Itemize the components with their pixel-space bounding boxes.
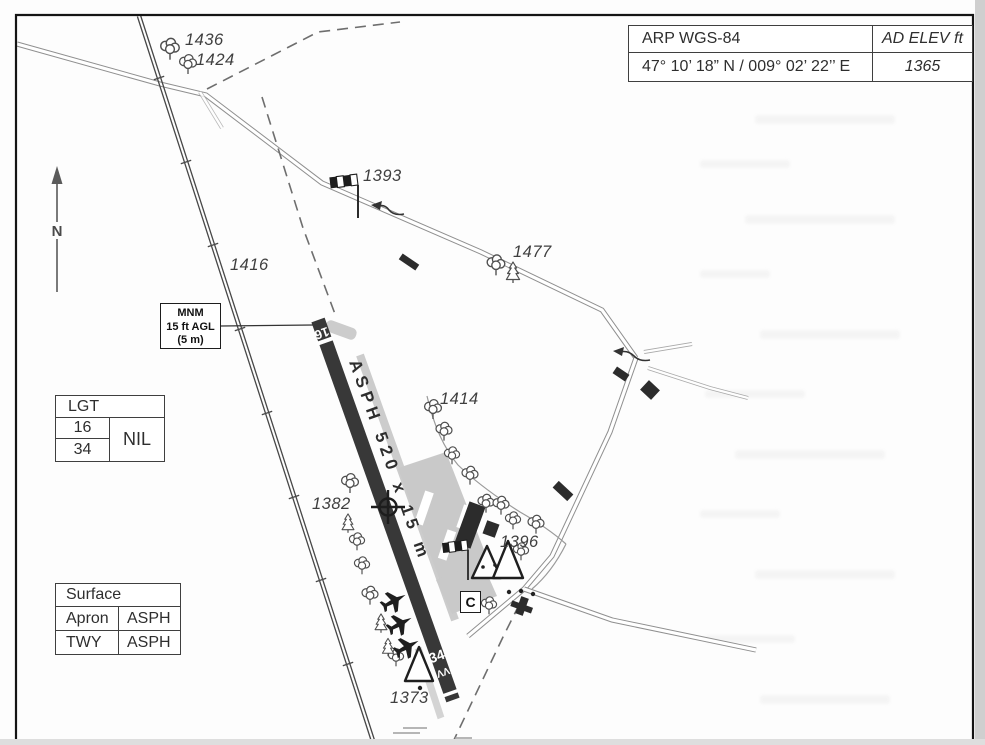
surface-twy-value: ASPH (119, 631, 180, 654)
lgt-value: NIL (110, 418, 164, 461)
mnm-leader-line (221, 325, 313, 326)
tree-icon (362, 586, 378, 604)
tree-icon (342, 474, 359, 493)
lgt-rwy-34: 34 (56, 439, 110, 461)
conifer-icon (342, 514, 354, 533)
mnm-line1: MNM (161, 307, 220, 321)
north-label: N (52, 223, 63, 240)
conifer-icon (382, 638, 393, 656)
tree-icon (528, 515, 544, 533)
mnm-line3: (5 m) (161, 334, 220, 348)
lgt-table: LGT 16 NIL 34 (55, 395, 165, 462)
tree-icon (505, 512, 520, 529)
surface-title: Surface (56, 584, 180, 607)
spot-elevation-1477: 1477 (513, 243, 552, 261)
spot-elevation-1393: 1393 (363, 167, 402, 185)
spot-elevation-1416: 1416 (230, 256, 269, 274)
tree-icon (425, 400, 442, 419)
aircraft-icon (377, 585, 411, 617)
page-edge-right (975, 0, 985, 745)
boundary-dash-nw (207, 22, 400, 89)
lgt-title: LGT (56, 396, 164, 418)
aerodrome-chart-page: 16 34 ΛΛ ASPH 520 x 15 m (0, 0, 985, 745)
spot-elevation-1396: 1396 (500, 533, 539, 551)
mnm-agl-box: MNM 15 ft AGL (5 m) (160, 303, 221, 349)
spot-elevation-1414: 1414 (440, 390, 479, 408)
arp-coordinates: 47° 10’ 18” N / 009° 02’ 22’’ E (629, 53, 873, 81)
tree-icon (487, 255, 505, 275)
spot-elevation-1382: 1382 (312, 495, 351, 513)
spot-elevation-1436: 1436 (185, 31, 224, 49)
arp-label: ARP WGS-84 (629, 26, 873, 53)
main-road (17, 44, 636, 358)
tree-icon (493, 496, 509, 514)
tree-icon (354, 557, 369, 574)
spot-elevation-1424: 1424 (196, 51, 235, 69)
surface-table: Surface Apron ASPH TWY ASPH (55, 583, 181, 655)
aircraft-icon (383, 608, 417, 640)
signal-area-c-badge: C (460, 591, 481, 613)
surface-row-twy: TWY (56, 631, 119, 654)
tree-icon (436, 422, 452, 440)
road-branches-east (644, 344, 748, 398)
boundary-dash-centerline (262, 97, 335, 314)
lgt-rwy-16: 16 (56, 418, 110, 439)
building (482, 520, 499, 538)
tree-icon (180, 55, 197, 74)
mnm-line2: 15 ft AGL (161, 321, 220, 335)
tree-icon (161, 38, 179, 59)
building (553, 481, 574, 501)
conifer-icon (375, 614, 387, 633)
north-arrow: N (47, 166, 67, 292)
spot-elevation-1373: 1373 (390, 689, 429, 707)
ad-elev-label: AD ELEV ft (873, 26, 972, 53)
surface-apron-value: ASPH (119, 607, 180, 630)
page-edge-bottom (0, 739, 985, 745)
tree-icon (349, 533, 364, 550)
surface-row-apron: Apron (56, 607, 119, 630)
tree-icon (462, 466, 478, 484)
building (399, 254, 419, 271)
ad-elev-value: 1365 (873, 53, 972, 81)
arp-elevation-table: ARP WGS-84 AD ELEV ft 47° 10’ 18” N / 00… (628, 25, 973, 82)
building (640, 380, 660, 400)
